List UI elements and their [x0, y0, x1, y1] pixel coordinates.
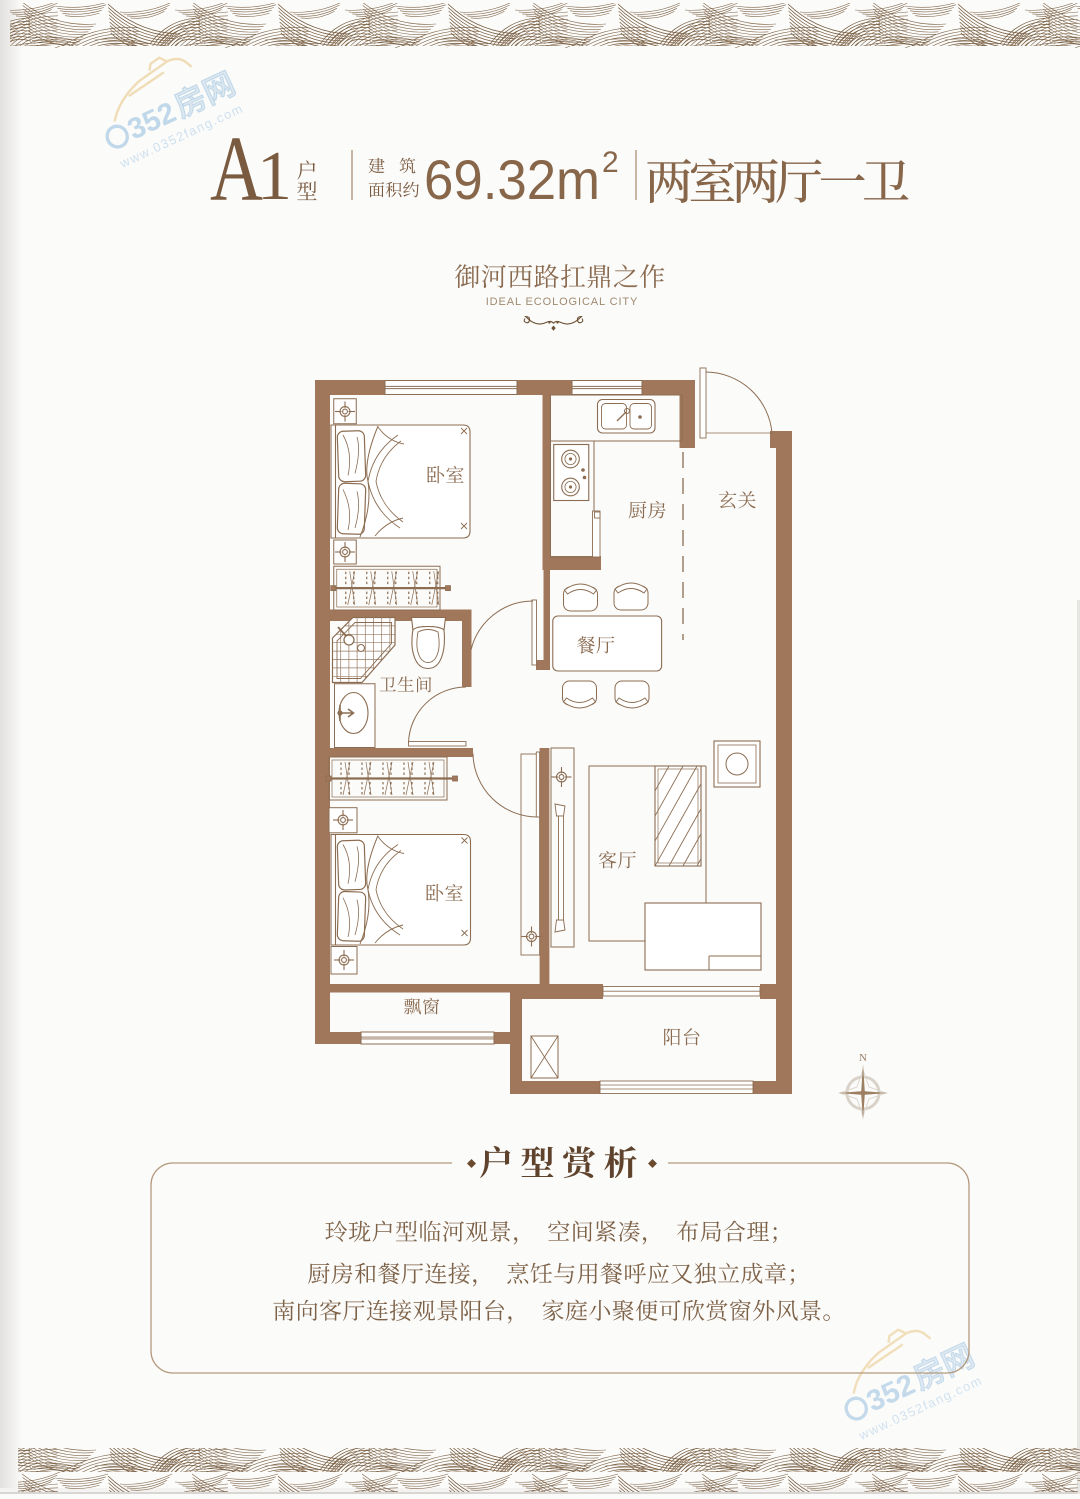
svg-text:A: A [210, 118, 263, 221]
svg-text:IDEAL ECOLOGICAL CITY: IDEAL ECOLOGICAL CITY [486, 296, 639, 308]
svg-text:69.32m: 69.32m [424, 148, 600, 211]
svg-text:2: 2 [602, 146, 619, 179]
svg-text:N: N [859, 1052, 867, 1064]
svg-text:1: 1 [257, 138, 292, 215]
